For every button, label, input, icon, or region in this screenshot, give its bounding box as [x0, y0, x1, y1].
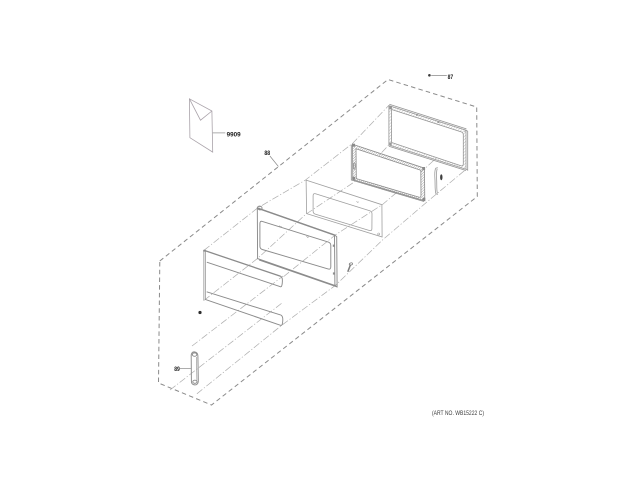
svg-text:87: 87: [448, 74, 454, 81]
svg-text:9909: 9909: [227, 132, 241, 139]
svg-text:88: 88: [264, 150, 270, 157]
svg-text:89: 89: [174, 366, 180, 373]
svg-text:(ART NO. WB15222 C): (ART NO. WB15222 C): [432, 410, 484, 417]
